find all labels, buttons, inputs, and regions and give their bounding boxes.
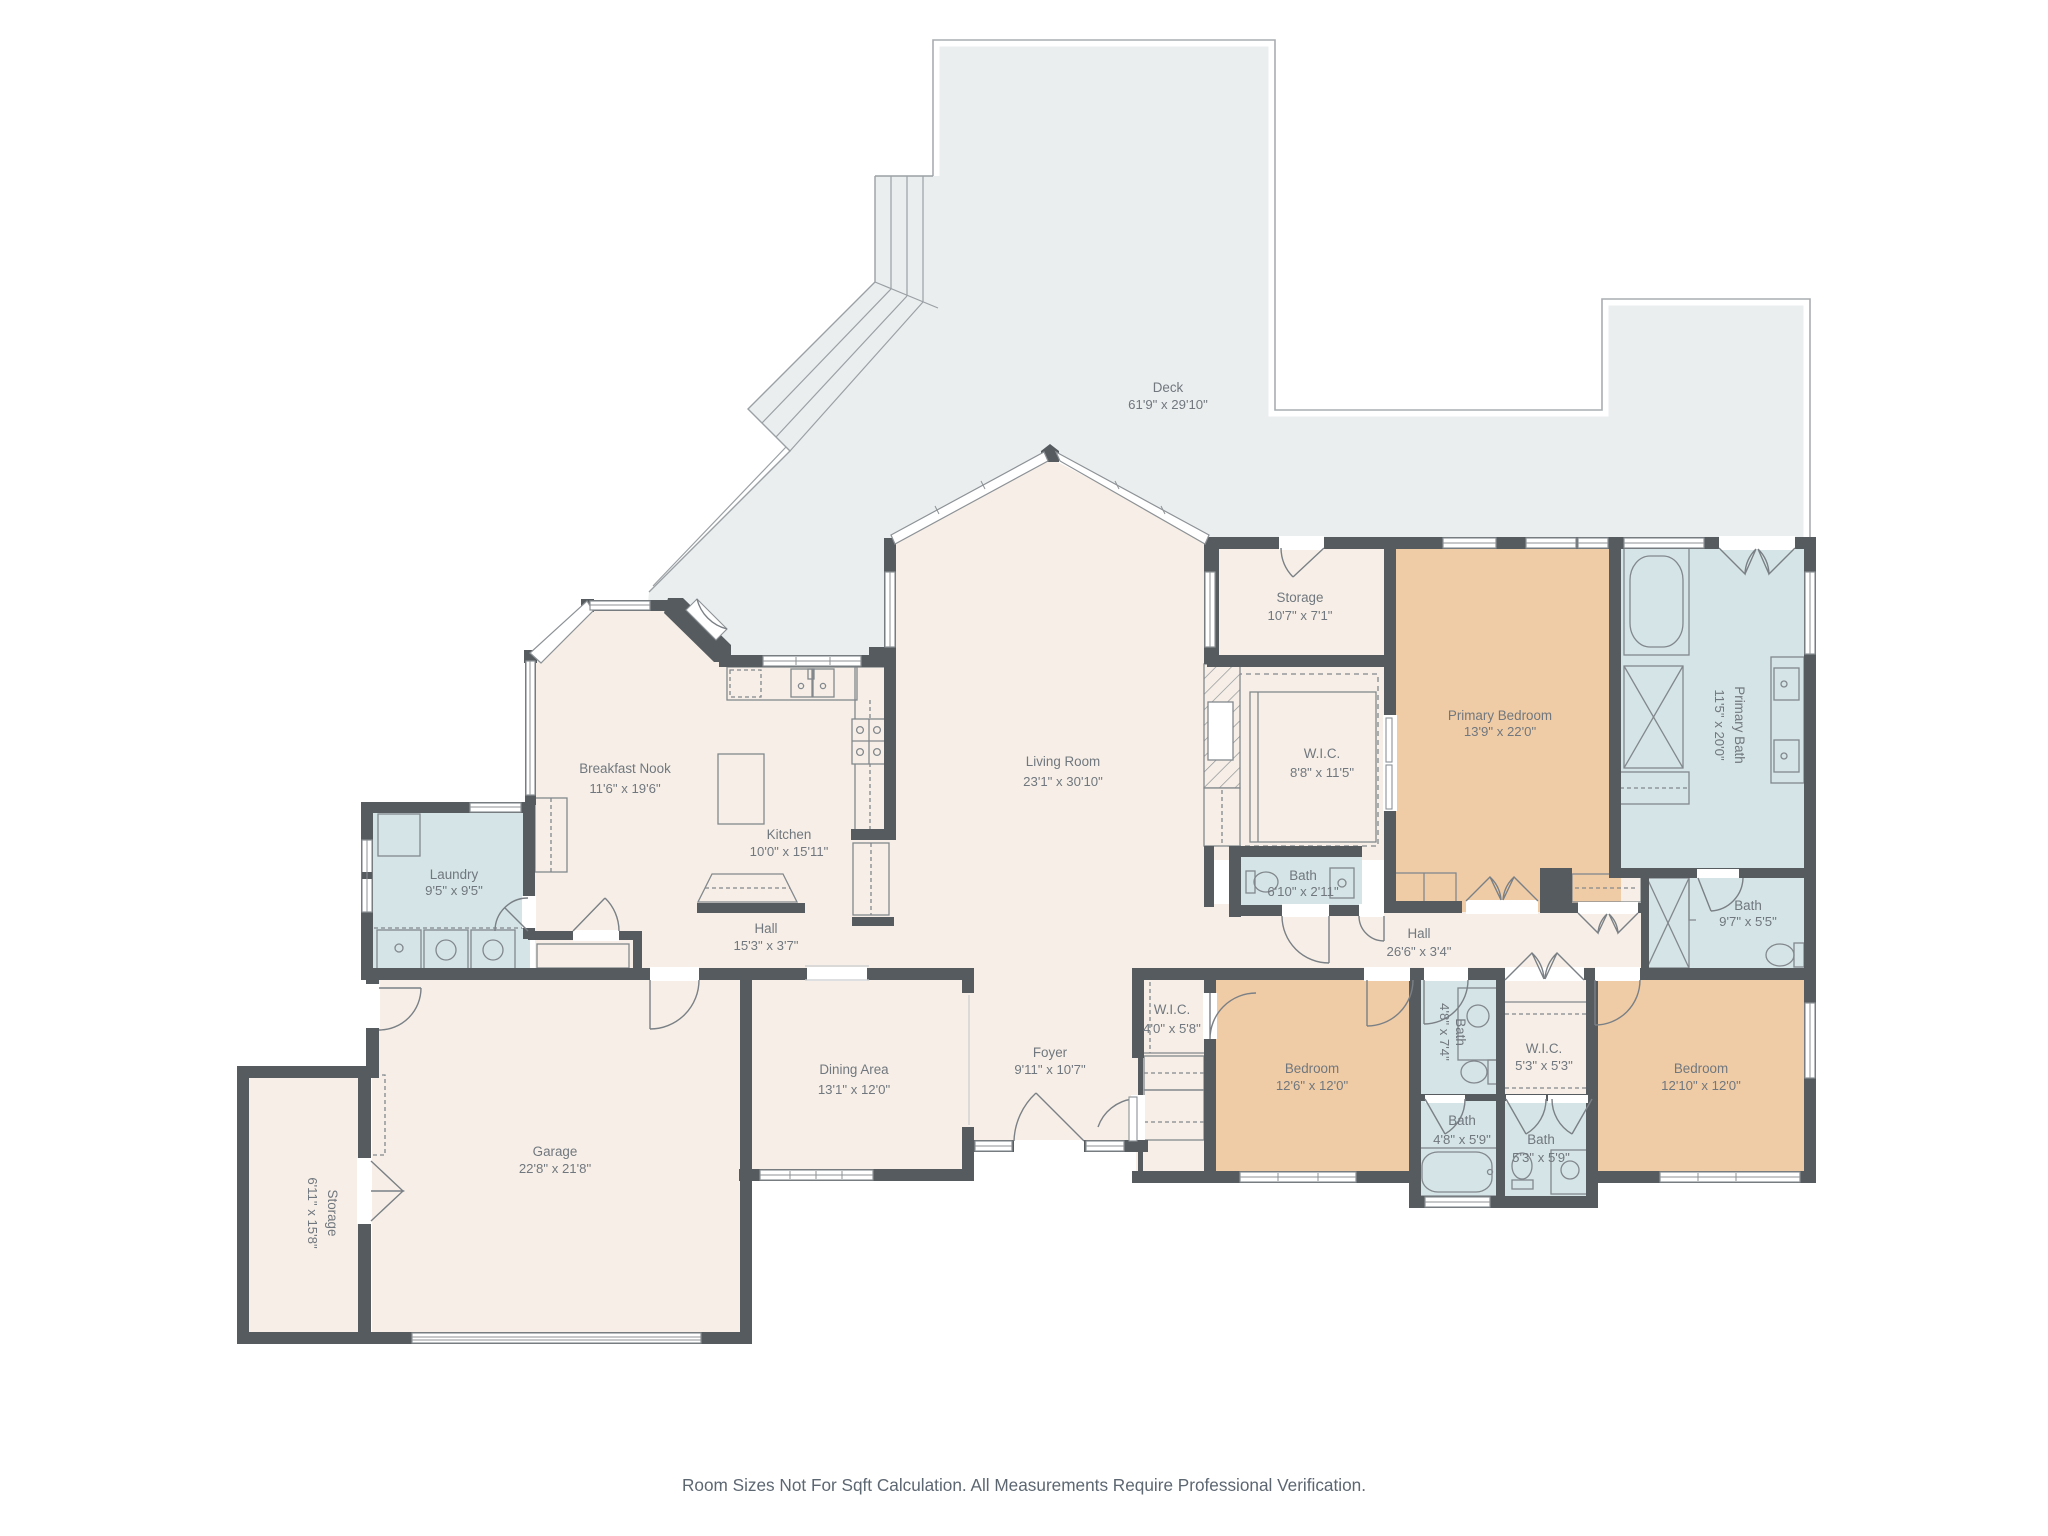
svg-text:9'7" x 5'5": 9'7" x 5'5" (1719, 914, 1777, 929)
svg-text:Kitchen: Kitchen (767, 827, 812, 842)
svg-text:26'6" x 3'4": 26'6" x 3'4" (1387, 944, 1452, 959)
svg-text:Bedroom: Bedroom (1285, 1061, 1339, 1076)
svg-text:Bath: Bath (1734, 898, 1762, 913)
svg-text:Bath: Bath (1453, 1018, 1468, 1046)
svg-text:13'1" x 12'0": 13'1" x 12'0" (818, 1082, 891, 1097)
svg-text:10'0" x 15'11": 10'0" x 15'11" (750, 844, 829, 859)
svg-text:22'8" x 21'8": 22'8" x 21'8" (519, 1161, 592, 1176)
svg-text:6'10" x 2'11": 6'10" x 2'11" (1267, 884, 1339, 899)
svg-text:W.I.C.: W.I.C. (1304, 746, 1340, 761)
svg-text:11'6" x 19'6": 11'6" x 19'6" (589, 781, 661, 796)
svg-text:9'5" x 9'5": 9'5" x 9'5" (425, 883, 483, 898)
svg-text:Dining Area: Dining Area (819, 1062, 889, 1077)
svg-text:Laundry: Laundry (430, 867, 479, 882)
svg-text:W.I.C.: W.I.C. (1154, 1002, 1190, 1017)
svg-text:Storage: Storage (325, 1190, 340, 1237)
svg-text:Primary Bath: Primary Bath (1732, 686, 1747, 763)
svg-text:4'8" x 7'4": 4'8" x 7'4" (1437, 1003, 1452, 1061)
svg-text:Room Sizes Not For Sqft Calcul: Room Sizes Not For Sqft Calculation. All… (682, 1475, 1366, 1495)
svg-text:5'3" x 5'9": 5'3" x 5'9" (1512, 1150, 1570, 1165)
svg-text:Primary Bedroom: Primary Bedroom (1448, 708, 1552, 723)
svg-text:5'3" x 5'3": 5'3" x 5'3" (1515, 1058, 1573, 1073)
svg-text:Bedroom: Bedroom (1674, 1061, 1728, 1076)
svg-text:Hall: Hall (754, 921, 777, 936)
svg-text:13'9" x 22'0": 13'9" x 22'0" (1464, 724, 1537, 739)
svg-text:Deck: Deck (1153, 380, 1184, 395)
svg-text:8'8" x 11'5": 8'8" x 11'5" (1290, 765, 1354, 780)
svg-text:Bath: Bath (1448, 1113, 1476, 1128)
svg-text:9'11" x 10'7": 9'11" x 10'7" (1014, 1062, 1086, 1077)
svg-text:12'10" x 12'0": 12'10" x 12'0" (1661, 1078, 1741, 1093)
svg-text:61'9" x 29'10": 61'9" x 29'10" (1128, 397, 1208, 412)
svg-text:6'11" x 15'8": 6'11" x 15'8" (305, 1177, 320, 1249)
svg-text:10'7" x 7'1": 10'7" x 7'1" (1268, 608, 1333, 623)
svg-text:W.I.C.: W.I.C. (1526, 1041, 1562, 1056)
svg-text:4'8" x 5'9": 4'8" x 5'9" (1433, 1132, 1491, 1147)
svg-text:23'1" x 30'10": 23'1" x 30'10" (1023, 774, 1103, 789)
svg-text:11'5" x 20'0": 11'5" x 20'0" (1712, 689, 1727, 761)
svg-text:Living Room: Living Room (1026, 754, 1100, 769)
svg-text:15'3" x 3'7": 15'3" x 3'7" (734, 938, 799, 953)
svg-text:Storage: Storage (1277, 590, 1324, 605)
svg-text:12'6" x 12'0": 12'6" x 12'0" (1276, 1078, 1349, 1093)
svg-text:4'0" x 5'8": 4'0" x 5'8" (1143, 1021, 1201, 1036)
svg-text:Bath: Bath (1289, 868, 1317, 883)
svg-text:Breakfast Nook: Breakfast Nook (579, 761, 671, 776)
svg-text:Hall: Hall (1407, 926, 1430, 941)
svg-text:Garage: Garage (533, 1144, 578, 1159)
svg-text:Bath: Bath (1527, 1132, 1555, 1147)
svg-text:Foyer: Foyer (1033, 1045, 1068, 1060)
